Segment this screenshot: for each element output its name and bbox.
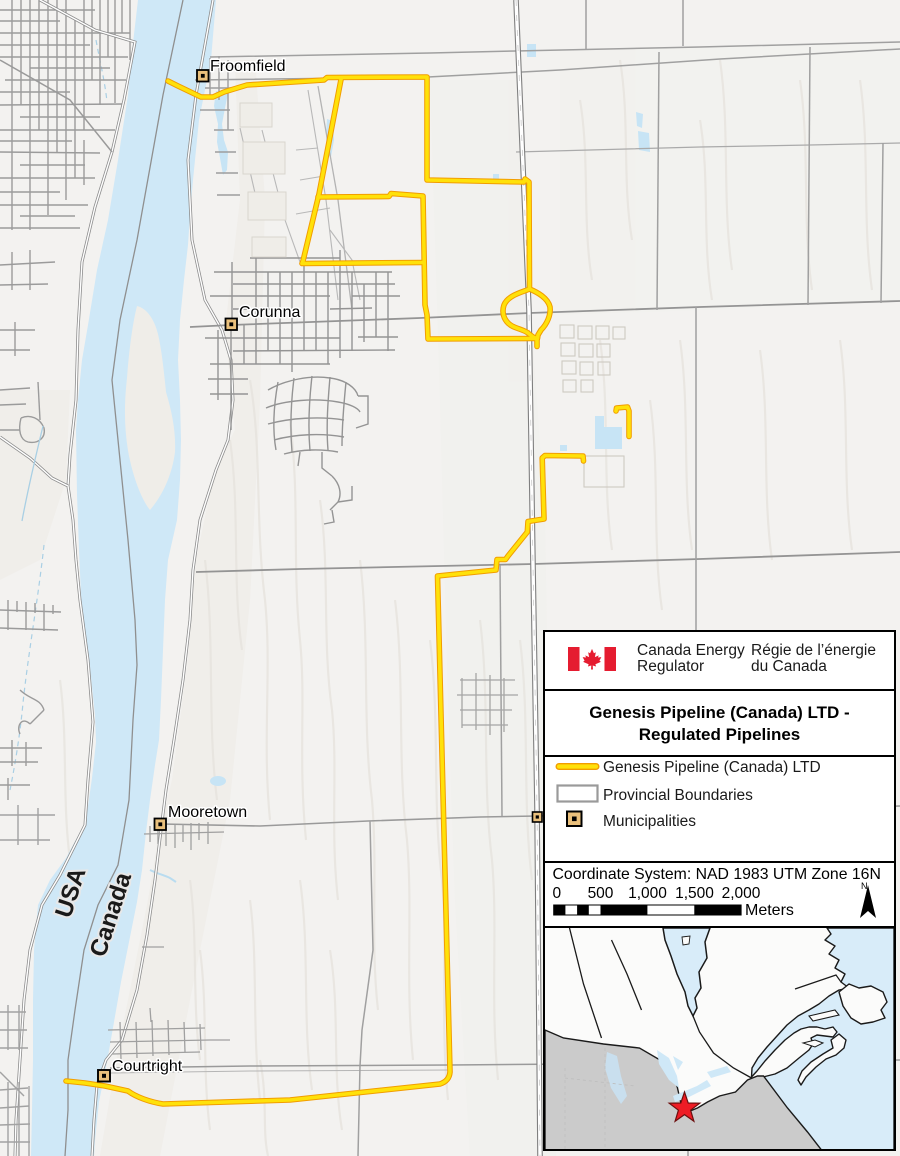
svg-text:Courtright: Courtright	[112, 1058, 183, 1075]
svg-text:500: 500	[588, 885, 614, 902]
svg-text:1,000: 1,000	[628, 885, 667, 902]
svg-text:Coordinate System: NAD 1983 UT: Coordinate System: NAD 1983 UTM Zone 16N	[553, 866, 881, 883]
svg-text:2,000: 2,000	[722, 885, 761, 902]
svg-text:Corunna: Corunna	[239, 304, 300, 321]
svg-text:N: N	[861, 881, 868, 891]
svg-text:Froomfield: Froomfield	[210, 58, 286, 75]
svg-text:Mooretown: Mooretown	[168, 804, 247, 821]
svg-text:Meters: Meters	[745, 902, 794, 919]
svg-text:0: 0	[553, 885, 562, 902]
svg-text:1,500: 1,500	[675, 885, 714, 902]
